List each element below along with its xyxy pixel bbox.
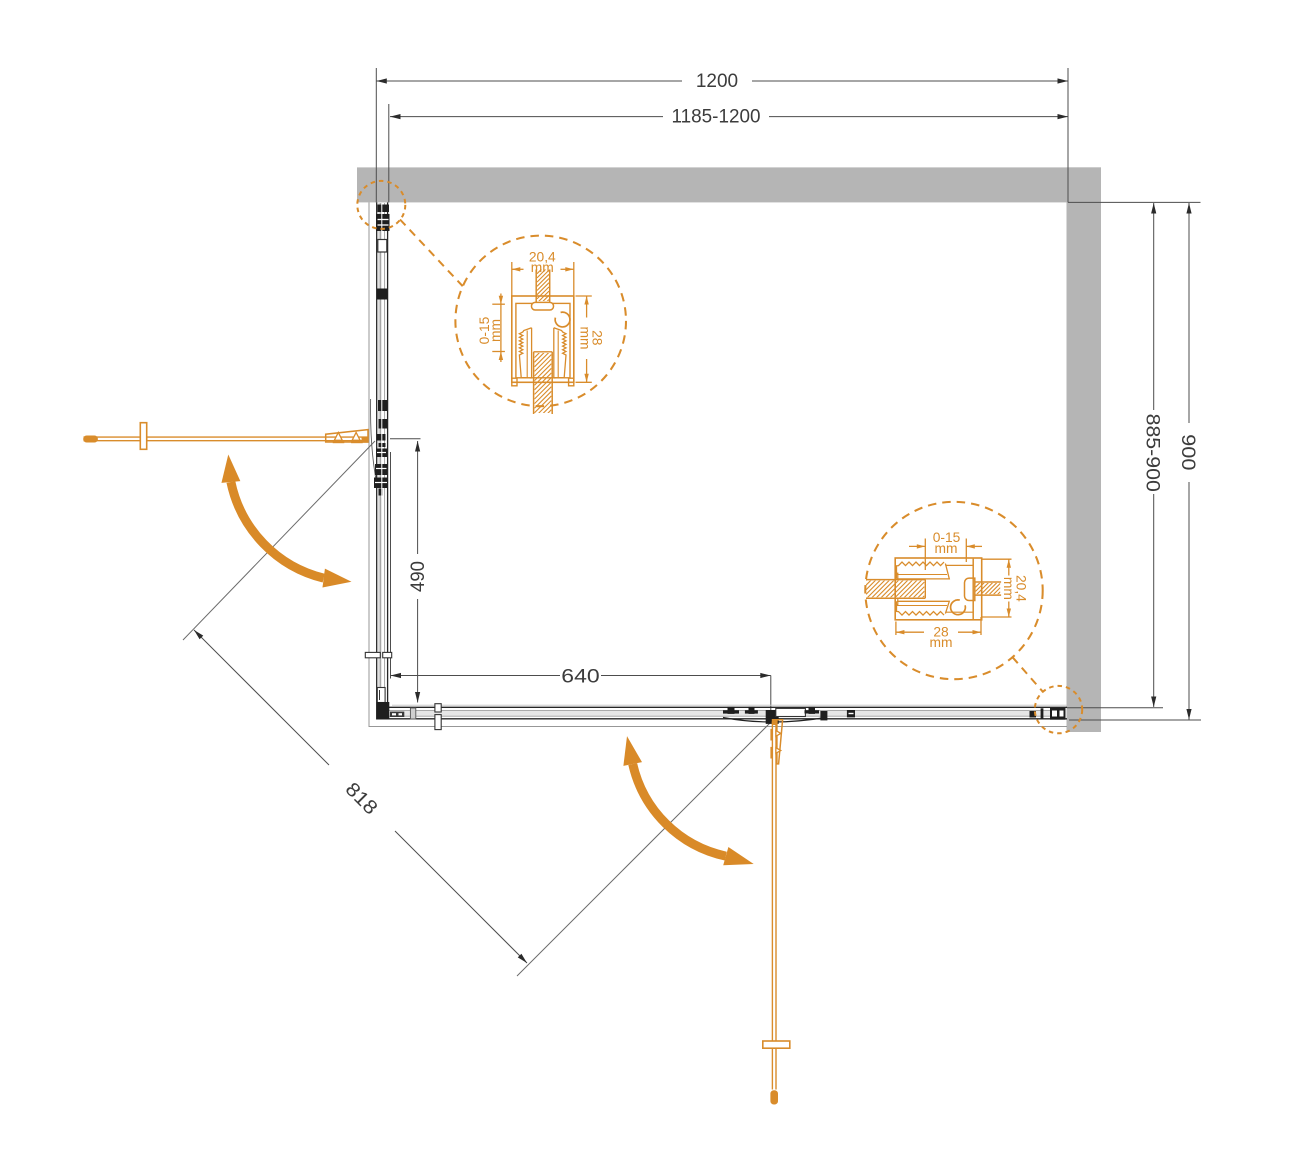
svg-text:mm: mm xyxy=(531,260,554,275)
svg-text:mm: mm xyxy=(488,319,503,342)
svg-text:490: 490 xyxy=(407,561,429,592)
svg-text:885-900: 885-900 xyxy=(1142,414,1164,492)
svg-text:mm: mm xyxy=(935,541,958,556)
svg-text:mm: mm xyxy=(577,327,592,350)
svg-text:mm: mm xyxy=(1001,577,1016,600)
svg-text:1185-1200: 1185-1200 xyxy=(672,106,761,128)
svg-text:mm: mm xyxy=(930,635,953,650)
svg-text:640: 640 xyxy=(561,666,600,688)
svg-text:900: 900 xyxy=(1177,434,1199,470)
svg-text:1200: 1200 xyxy=(696,70,738,92)
